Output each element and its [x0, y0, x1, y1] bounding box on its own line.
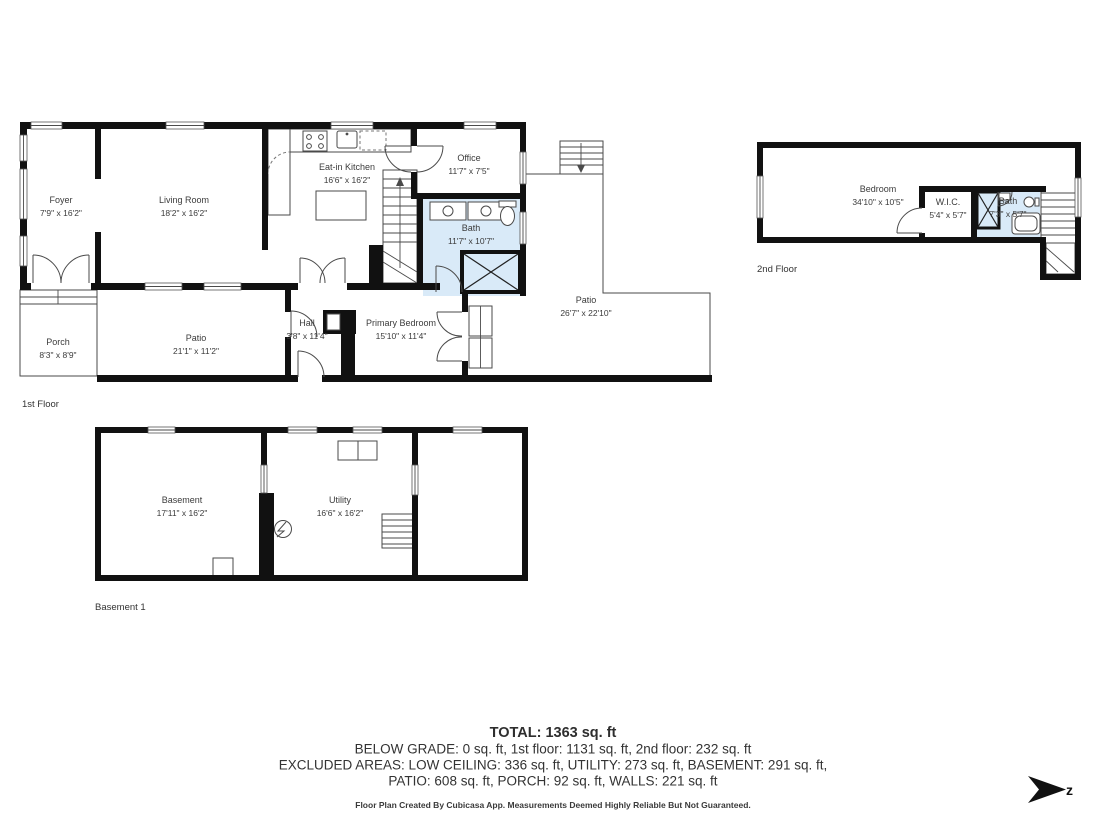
room-name-living: Living Room — [159, 195, 209, 205]
sliding-door — [469, 306, 492, 368]
room-name-hall: Hall — [299, 318, 315, 328]
first-floor-walls — [20, 122, 712, 382]
room-dims-patio-large: 26'7" x 22'10" — [560, 308, 611, 318]
basement-fixture-box — [213, 558, 233, 577]
compass: z — [1028, 776, 1073, 803]
north-arrow-icon — [1028, 776, 1066, 803]
room-dims-foyer: 7'9" x 16'2" — [40, 208, 82, 218]
room-dims-primary-bedroom: 15'10" x 11'4" — [376, 331, 427, 341]
room-name-bath1: Bath — [462, 223, 481, 233]
exterior-stairs — [560, 141, 603, 174]
water-heater — [338, 441, 377, 460]
room-dims-porch: 8'3" x 8'9" — [39, 350, 76, 360]
room-dims-basement: 17'11" x 16'2" — [157, 508, 208, 518]
room-name-foyer: Foyer — [49, 195, 72, 205]
room-name-bedroom: Bedroom — [860, 184, 897, 194]
basement-windows — [148, 427, 482, 495]
floor-plan-page: Foyer 7'9" x 16'2" Living Room 18'2" x 1… — [0, 0, 1100, 825]
summary-excluded-1: EXCLUDED AREAS: LOW CEILING: 336 sq. ft,… — [279, 758, 827, 773]
room-dims-office: 11'7" x 7'5" — [448, 166, 489, 176]
room-dims-living: 18'2" x 16'2" — [161, 208, 208, 218]
room-dims-bedroom: 34'10" x 10'5" — [852, 197, 903, 207]
toilet2-icon — [1024, 197, 1039, 207]
room-dims-hall: 3'8" x 11'4" — [286, 331, 327, 341]
shower — [462, 252, 520, 292]
electrical-panel-icon — [275, 521, 292, 538]
summary-below-grade: BELOW GRADE: 0 sq. ft, 1st floor: 1131 s… — [355, 742, 752, 757]
room-dims-utility: 16'6" x 16'2" — [317, 508, 364, 518]
room-name-kitchen: Eat-in Kitchen — [319, 162, 375, 172]
first-floor-plan: Foyer 7'9" x 16'2" Living Room 18'2" x 1… — [20, 122, 712, 410]
room-dims-wic: 5'4" x 5'7" — [929, 210, 966, 220]
stove-icon — [303, 131, 327, 151]
room-dims-kitchen: 16'6" x 16'2" — [324, 175, 371, 185]
second-floor-stairs — [1041, 192, 1075, 274]
room-name-wic: W.I.C. — [936, 197, 961, 207]
room-dims-patio: 21'1" x 11'2" — [173, 346, 219, 356]
toilet-icon — [499, 201, 516, 226]
floor-plan-canvas: Foyer 7'9" x 16'2" Living Room 18'2" x 1… — [0, 0, 1100, 825]
porch-outline — [20, 290, 97, 376]
room-name-bath2: Bath — [999, 196, 1018, 206]
room-name-patio: Patio — [186, 333, 207, 343]
room-name-primary-bedroom: Primary Bedroom — [366, 318, 436, 328]
large-patio-outline — [526, 141, 710, 375]
second-floor-label: 2nd Floor — [757, 264, 797, 275]
basement-stairs — [382, 514, 413, 548]
summary-excluded-2: PATIO: 608 sq. ft, PORCH: 92 sq. ft, WAL… — [388, 774, 717, 789]
first-floor-label: 1st Floor — [22, 399, 59, 410]
basement-floor-label: Basement 1 — [95, 602, 146, 613]
basement-walls — [95, 427, 528, 581]
basement-plan: Basement 17'11" x 16'2" Utility 16'6" x … — [95, 427, 528, 613]
summary: TOTAL: 1363 sq. ft BELOW GRADE: 0 sq. ft… — [279, 725, 827, 810]
room-dims-bath1: 11'7" x 10'7" — [448, 236, 494, 246]
room-name-office: Office — [457, 153, 480, 163]
room-name-porch: Porch — [46, 337, 70, 347]
summary-total: TOTAL: 1363 sq. ft — [490, 725, 617, 741]
second-floor-plan: Bedroom 34'10" x 10'5" W.I.C. 5'4" x 5'7… — [757, 142, 1081, 280]
room-dims-bath2: 7'3" x 5'7" — [989, 209, 1026, 219]
room-name-patio-large: Patio — [576, 295, 597, 305]
kitchen-sink-icon — [337, 131, 357, 148]
room-name-utility: Utility — [329, 495, 351, 505]
room-name-basement: Basement — [162, 495, 203, 505]
summary-disclaimer: Floor Plan Created By Cubicasa App. Meas… — [355, 800, 751, 810]
kitchen-island — [316, 191, 366, 220]
compass-letter: z — [1066, 782, 1073, 798]
